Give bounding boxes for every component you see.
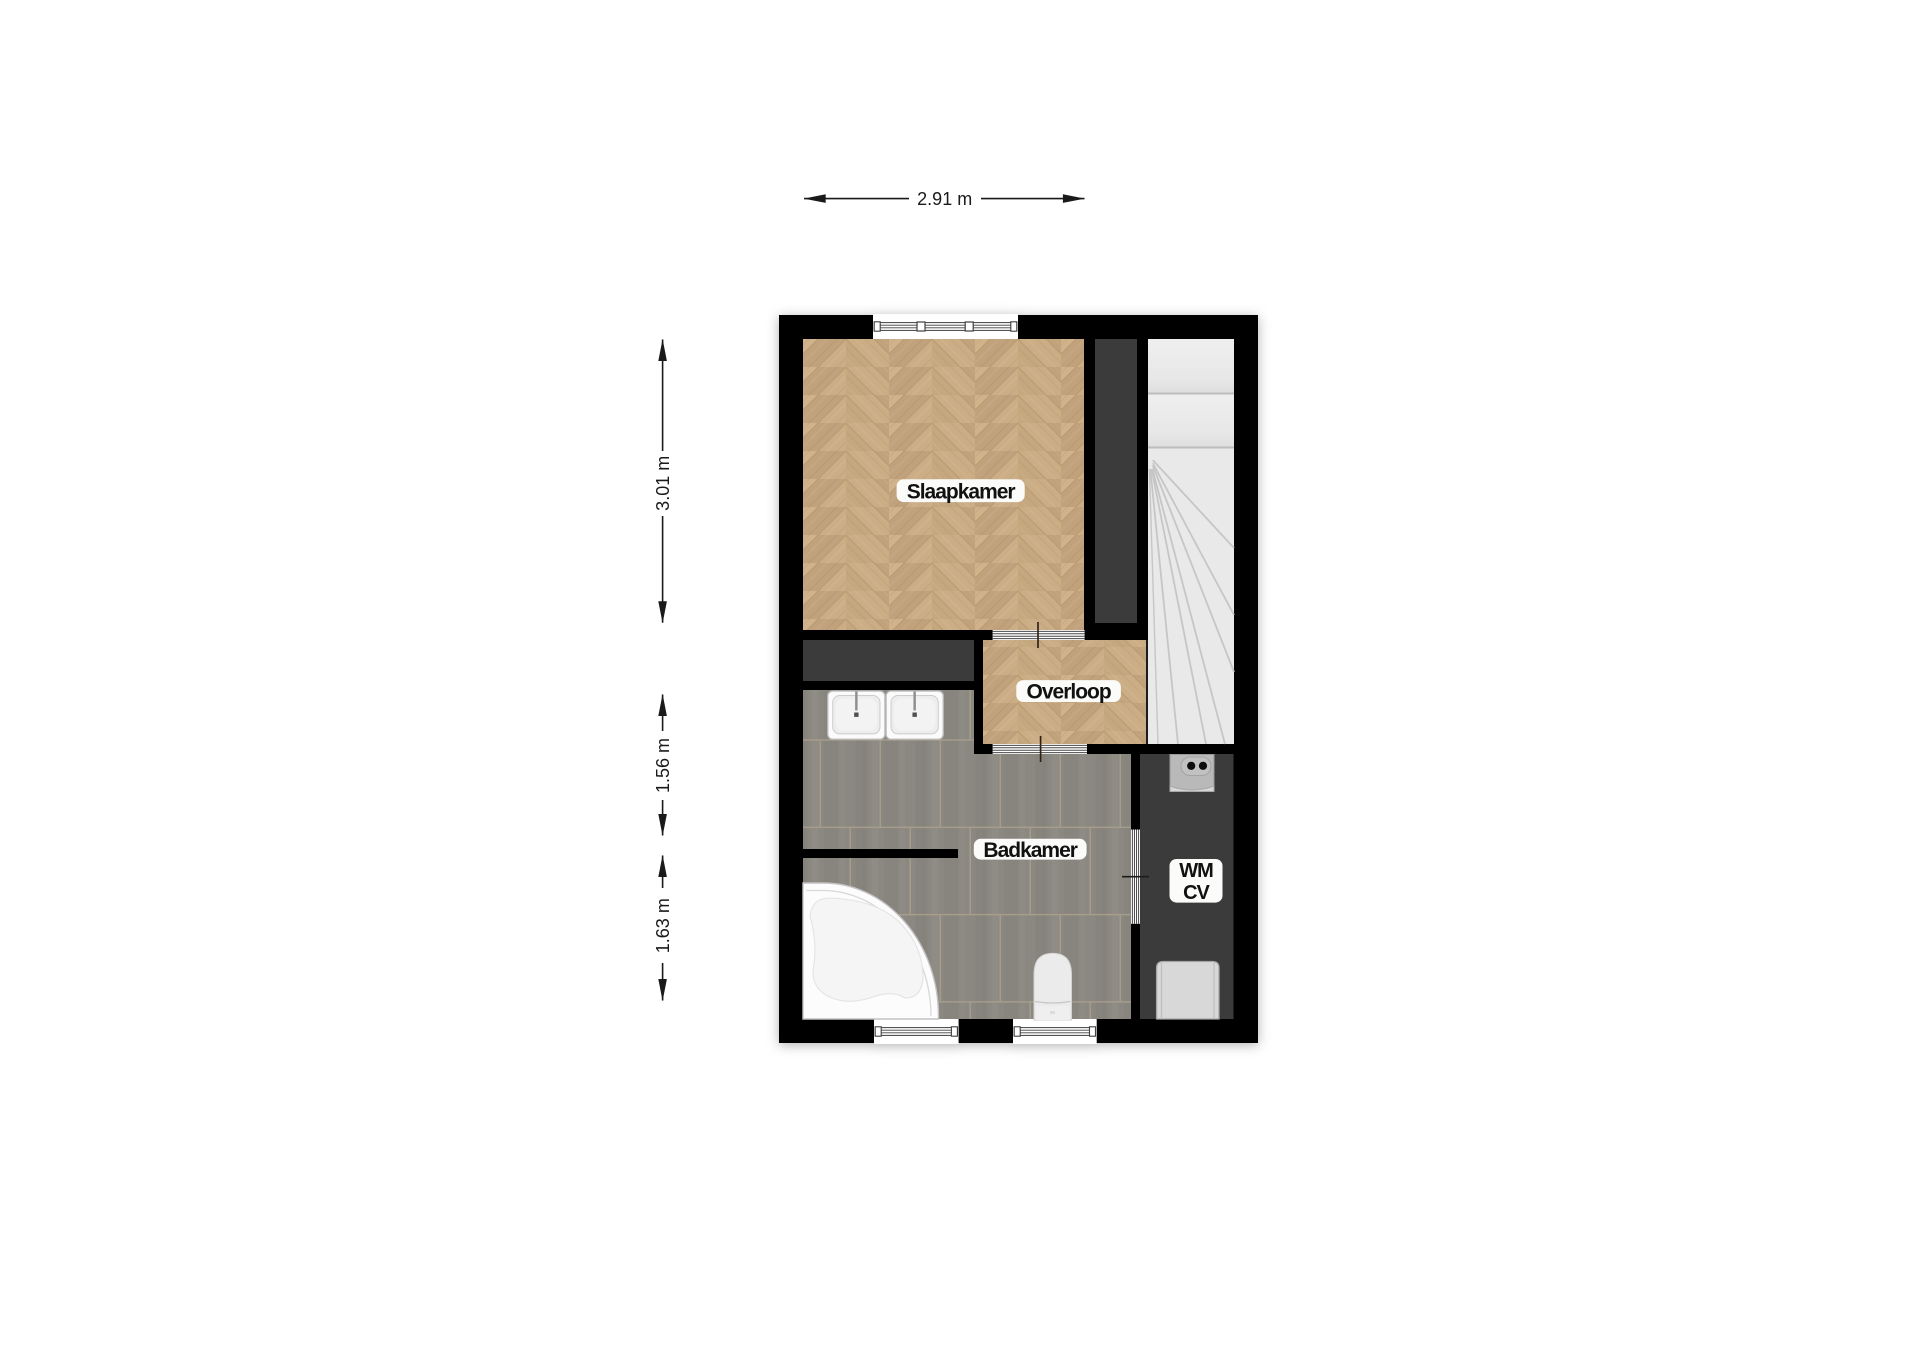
svg-text:Slaapkamer: Slaapkamer — [907, 480, 1016, 503]
svg-text:2.91 m: 2.91 m — [917, 189, 972, 209]
svg-text:CV: CV — [1183, 882, 1210, 904]
svg-text:Overloop: Overloop — [1027, 681, 1111, 704]
svg-text:1.63 m: 1.63 m — [653, 898, 673, 953]
svg-text:WM: WM — [1179, 860, 1213, 882]
svg-text:Badkamer: Badkamer — [983, 839, 1077, 862]
svg-text:3.01 m: 3.01 m — [653, 456, 673, 511]
svg-text:1.56 m: 1.56 m — [653, 738, 673, 793]
